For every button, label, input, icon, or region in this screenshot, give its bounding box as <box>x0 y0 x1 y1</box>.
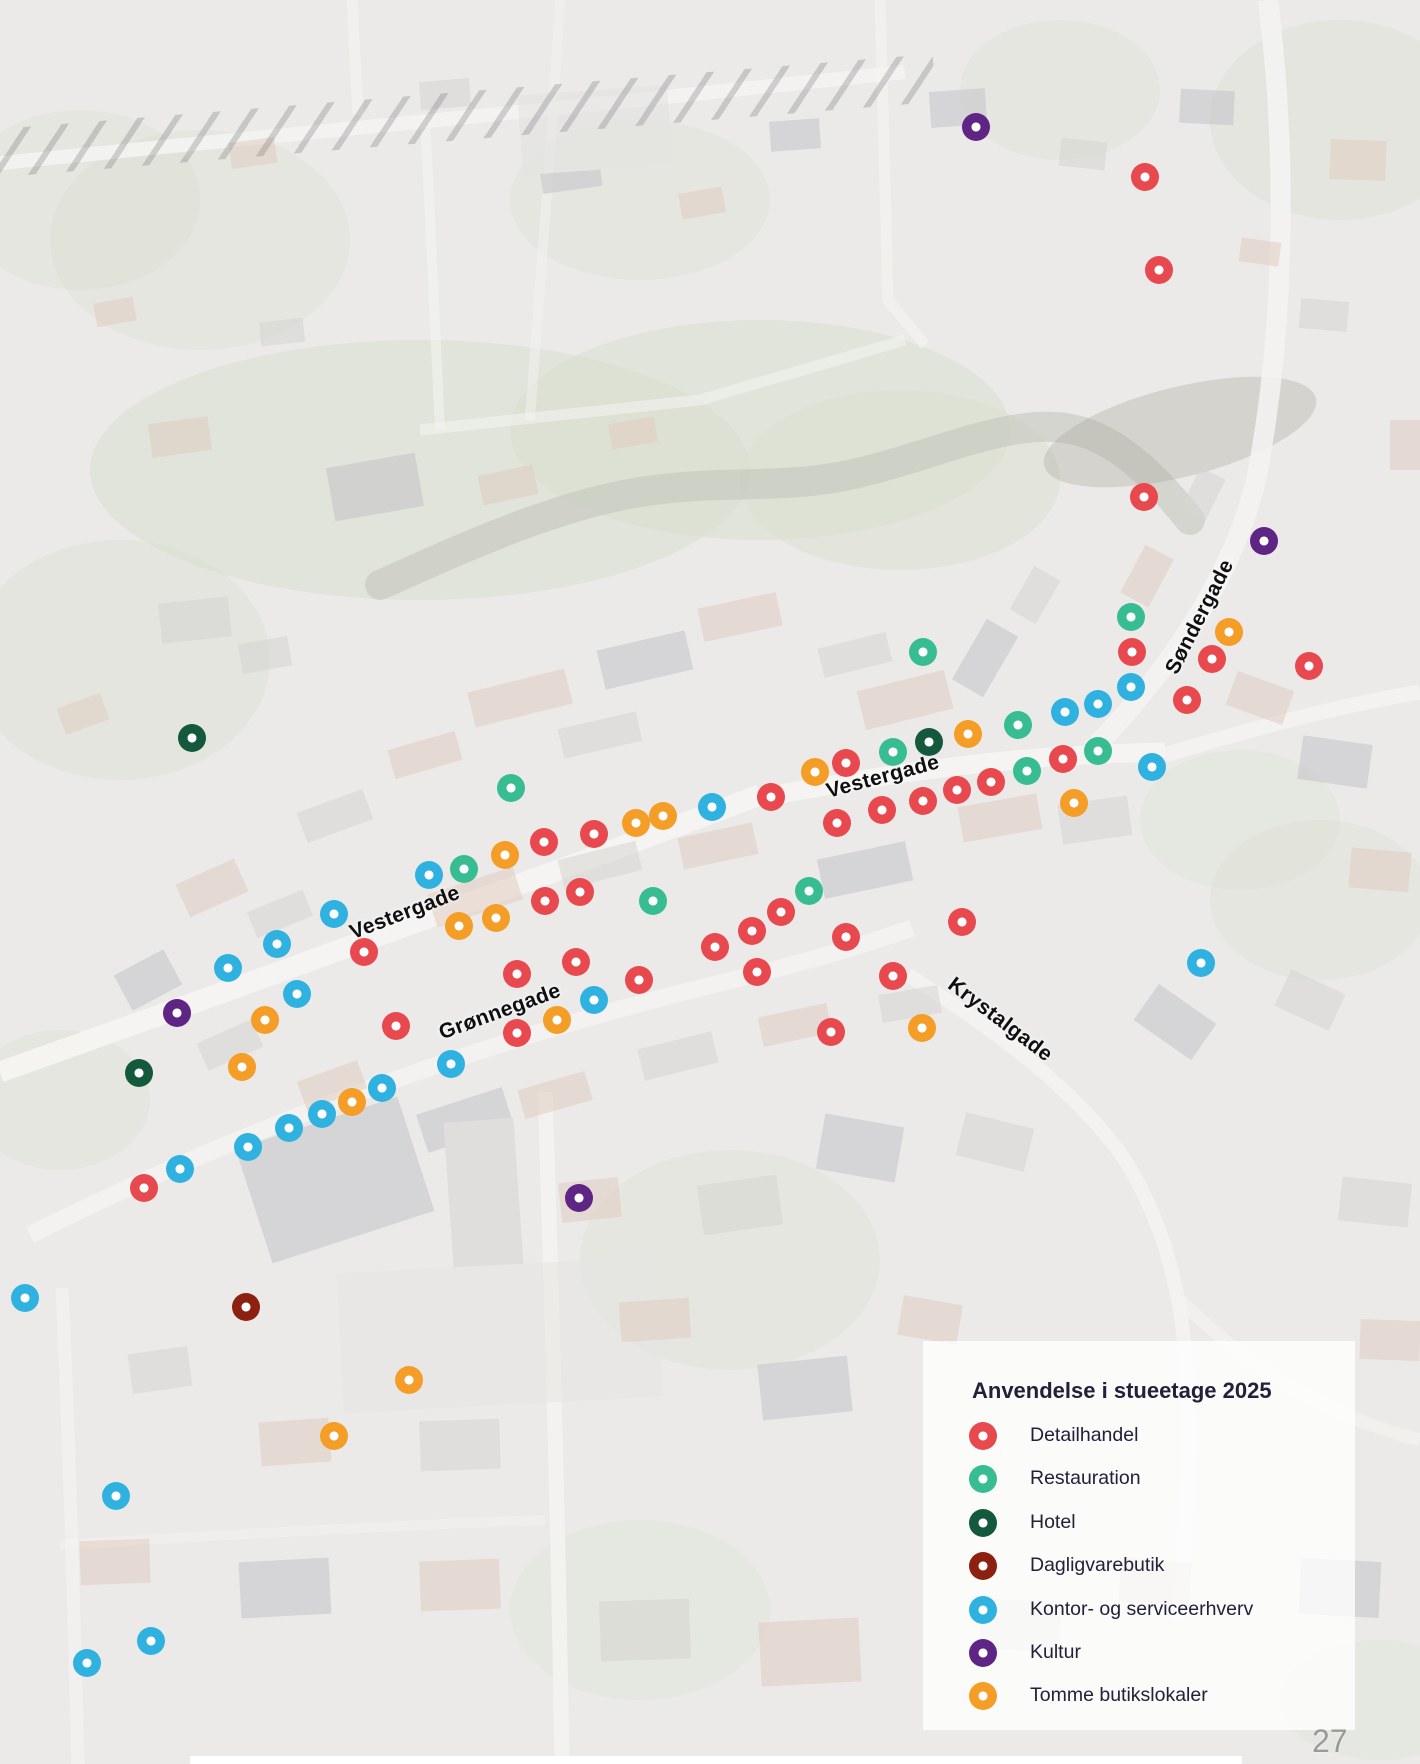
map-point-tomme <box>491 841 519 869</box>
map-point-kontor <box>437 1050 465 1078</box>
map-point-kontor <box>308 1100 336 1128</box>
map-point-detailhandel <box>562 948 590 976</box>
map-point-detailhandel <box>909 787 937 815</box>
map-point-detailhandel <box>701 933 729 961</box>
legend-label: Hotel <box>1030 1511 1076 1534</box>
legend-label: Kultur <box>1030 1641 1081 1664</box>
map-point-tomme <box>338 1088 366 1116</box>
map-point-kontor <box>166 1155 194 1183</box>
map-point-detailhandel <box>1130 483 1158 511</box>
map-point-detailhandel <box>130 1174 158 1202</box>
map-point-kontor <box>320 900 348 928</box>
map-point-tomme <box>1215 618 1243 646</box>
map-point-tomme <box>251 1006 279 1034</box>
map-point-restauration <box>1117 603 1145 631</box>
map-point-restauration <box>1084 737 1112 765</box>
map-point-detailhandel <box>1145 256 1173 284</box>
legend-item-tomme: Tomme butikslokaler <box>923 1682 1355 1710</box>
map-page: VestergadeVestergadeSøndergadeGrønnegade… <box>0 0 1420 1764</box>
legend-dot-dagligvarebutik <box>969 1552 997 1580</box>
legend-item-hotel: Hotel <box>923 1509 1355 1537</box>
map-point-kontor <box>580 986 608 1014</box>
map-point-kontor <box>368 1074 396 1102</box>
map-point-kontor <box>275 1114 303 1142</box>
map-point-kontor <box>263 930 291 958</box>
legend-label: Kontor- og serviceerhverv <box>1030 1598 1253 1621</box>
map-point-detailhandel <box>1049 745 1077 773</box>
map-point-kontor <box>415 861 443 889</box>
map-point-restauration <box>639 887 667 915</box>
map-point-detailhandel <box>503 960 531 988</box>
map-point-restauration <box>1013 757 1041 785</box>
map-point-hotel <box>178 724 206 752</box>
map-point-detailhandel <box>1118 638 1146 666</box>
map-point-kultur <box>1250 527 1278 555</box>
map-point-tomme <box>445 912 473 940</box>
footer-strip <box>190 1756 1242 1764</box>
map-point-detailhandel <box>879 962 907 990</box>
map-point-detailhandel <box>948 908 976 936</box>
map-point-tomme <box>908 1014 936 1042</box>
legend-label: Restauration <box>1030 1467 1141 1490</box>
map-point-kultur <box>163 999 191 1027</box>
legend-item-detailhandel: Detailhandel <box>923 1422 1355 1450</box>
map-point-detailhandel <box>757 783 785 811</box>
map-point-kontor <box>1138 753 1166 781</box>
legend-dot-kultur <box>969 1639 997 1667</box>
map-point-kontor <box>1084 690 1112 718</box>
map-point-detailhandel <box>531 887 559 915</box>
map-point-kontor <box>234 1133 262 1161</box>
map-point-tomme <box>622 809 650 837</box>
map-point-detailhandel <box>943 776 971 804</box>
map-point-detailhandel <box>625 966 653 994</box>
map-point-detailhandel <box>767 898 795 926</box>
page-number: 27 <box>1312 1723 1348 1760</box>
map-point-tomme <box>482 904 510 932</box>
map-point-detailhandel <box>566 878 594 906</box>
map-point-tomme <box>320 1422 348 1450</box>
map-point-detailhandel <box>503 1019 531 1047</box>
legend-label: Dagligvarebutik <box>1030 1554 1164 1577</box>
map-point-detailhandel <box>382 1012 410 1040</box>
map-point-tomme <box>649 802 677 830</box>
legend-item-kontor: Kontor- og serviceerhverv <box>923 1596 1355 1624</box>
map-point-detailhandel <box>868 796 896 824</box>
map-point-detailhandel <box>823 809 851 837</box>
map-point-kontor <box>11 1284 39 1312</box>
map-point-detailhandel <box>530 828 558 856</box>
map-point-restauration <box>1004 711 1032 739</box>
map-point-tomme <box>543 1006 571 1034</box>
map-point-kontor <box>73 1649 101 1677</box>
legend-label: Tomme butikslokaler <box>1030 1684 1208 1707</box>
legend-dot-kontor <box>969 1596 997 1624</box>
map-point-detailhandel <box>580 820 608 848</box>
map-point-kultur <box>962 113 990 141</box>
legend-label: Detailhandel <box>1030 1424 1138 1447</box>
map-point-kontor <box>1117 673 1145 701</box>
map-point-tomme <box>395 1366 423 1394</box>
map-point-kontor <box>1051 698 1079 726</box>
map-point-detailhandel <box>1131 163 1159 191</box>
map-point-restauration <box>909 638 937 666</box>
map-point-detailhandel <box>817 1018 845 1046</box>
map-point-kultur <box>565 1184 593 1212</box>
map-point-detailhandel <box>738 917 766 945</box>
map-point-kontor <box>102 1482 130 1510</box>
map-point-detailhandel <box>743 958 771 986</box>
legend-item-restauration: Restauration <box>923 1465 1355 1493</box>
legend-item-dagligvarebutik: Dagligvarebutik <box>923 1552 1355 1580</box>
map-point-restauration <box>795 877 823 905</box>
legend-dot-hotel <box>969 1509 997 1537</box>
map-point-tomme <box>954 720 982 748</box>
map-point-kontor <box>698 793 726 821</box>
map-point-kontor <box>283 980 311 1008</box>
map-point-detailhandel <box>1295 652 1323 680</box>
legend-dot-detailhandel <box>969 1422 997 1450</box>
legend-dot-restauration <box>969 1465 997 1493</box>
map-point-hotel <box>125 1059 153 1087</box>
map-point-detailhandel <box>832 923 860 951</box>
map-point-detailhandel <box>977 768 1005 796</box>
map-point-tomme <box>228 1053 256 1081</box>
map-point-detailhandel <box>1198 645 1226 673</box>
map-point-kontor <box>1187 949 1215 977</box>
map-point-dagligvarebutik <box>232 1293 260 1321</box>
map-point-detailhandel <box>1173 686 1201 714</box>
map-point-kontor <box>214 954 242 982</box>
map-point-tomme <box>1060 789 1088 817</box>
legend-item-kultur: Kultur <box>923 1639 1355 1667</box>
legend-dot-tomme <box>969 1682 997 1710</box>
legend-title: Anvendelse i stueetage 2025 <box>972 1378 1272 1404</box>
map-point-restauration <box>497 774 525 802</box>
legend: Anvendelse i stueetage 2025 Detailhandel… <box>923 1341 1355 1730</box>
map-point-kontor <box>137 1627 165 1655</box>
map-point-restauration <box>450 855 478 883</box>
